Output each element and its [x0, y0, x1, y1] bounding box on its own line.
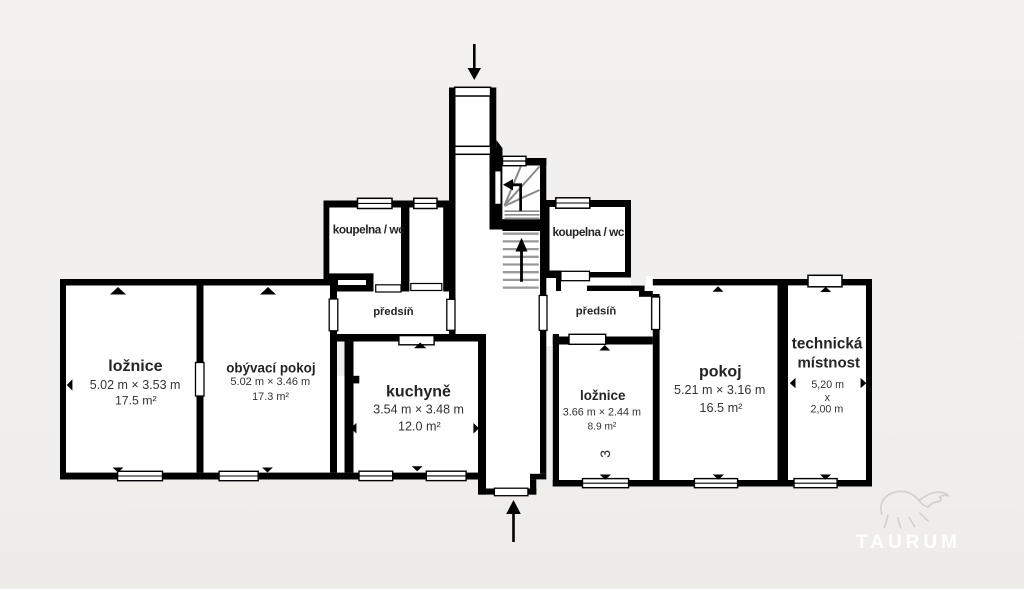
svg-text:koupelna / wc: koupelna / wc	[333, 223, 405, 237]
svg-text:ložnice: ložnice	[580, 388, 625, 403]
svg-text:místnost: místnost	[797, 355, 860, 372]
svg-text:2,00 m: 2,00 m	[811, 404, 844, 416]
svg-text:3: 3	[597, 450, 613, 458]
svg-text:pokoj: pokoj	[699, 364, 742, 381]
svg-text:předsíň: předsíň	[373, 306, 414, 318]
svg-text:12.0 m²: 12.0 m²	[398, 420, 441, 434]
svg-text:ložnice: ložnice	[108, 358, 162, 375]
svg-text:5.21 m × 3.16 m: 5.21 m × 3.16 m	[674, 383, 765, 397]
svg-text:5.02 m × 3.46 m: 5.02 m × 3.46 m	[230, 376, 310, 388]
svg-text:17.5 m²: 17.5 m²	[115, 394, 157, 408]
svg-text:TAURUM: TAURUM	[856, 532, 961, 553]
svg-text:3.54 m × 3.48 m: 3.54 m × 3.48 m	[373, 402, 464, 416]
svg-text:technická: technická	[792, 336, 863, 353]
svg-text:8.9 m²: 8.9 m²	[587, 422, 616, 433]
svg-text:5.02 m × 3.53 m: 5.02 m × 3.53 m	[90, 378, 181, 392]
svg-text:5,20 m: 5,20 m	[811, 379, 844, 391]
svg-text:17.3 m²: 17.3 m²	[252, 391, 289, 403]
svg-text:3.66 m × 2.44 m: 3.66 m × 2.44 m	[563, 407, 641, 419]
svg-text:16.5 m²: 16.5 m²	[699, 401, 742, 415]
svg-text:kuchyně: kuchyně	[386, 384, 451, 401]
svg-text:obývací pokoj: obývací pokoj	[226, 360, 315, 375]
svg-text:koupelna / wc: koupelna / wc	[552, 225, 624, 239]
svg-text:x: x	[825, 392, 831, 404]
svg-text:předsíň: předsíň	[576, 306, 617, 318]
